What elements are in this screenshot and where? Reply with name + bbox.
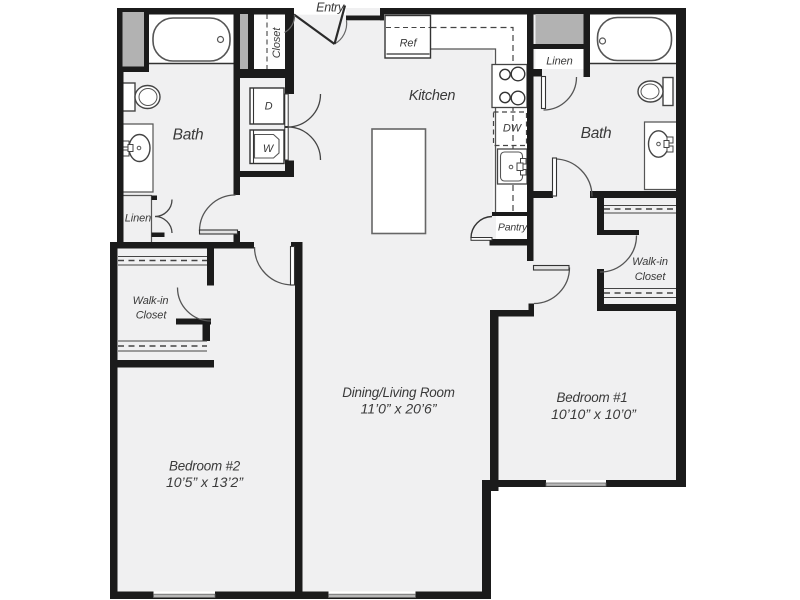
svg-text:Closet: Closet (635, 271, 667, 283)
svg-text:D: D (265, 101, 273, 113)
svg-text:Bath: Bath (173, 127, 204, 144)
svg-text:Ref: Ref (400, 38, 418, 50)
svg-text:Bedroom #1: Bedroom #1 (557, 390, 628, 405)
svg-text:10’10” x 10’0”: 10’10” x 10’0” (551, 406, 637, 422)
svg-text:Kitchen: Kitchen (409, 88, 455, 104)
svg-text:Bath: Bath (581, 125, 612, 142)
svg-text:Closet: Closet (271, 27, 283, 59)
svg-text:Closet: Closet (136, 310, 168, 322)
svg-text:Walk-in: Walk-in (133, 295, 169, 307)
svg-text:10’5” x 13’2”: 10’5” x 13’2” (166, 474, 244, 490)
svg-text:Bedroom #2: Bedroom #2 (169, 459, 241, 474)
svg-text:11’0” x 20’6”: 11’0” x 20’6” (360, 401, 437, 417)
svg-text:Linen: Linen (125, 213, 151, 225)
svg-text:Dining/Living Room: Dining/Living Room (342, 385, 455, 400)
svg-text:Linen: Linen (546, 56, 572, 68)
svg-text:W: W (263, 143, 275, 155)
svg-text:Entry: Entry (316, 1, 345, 15)
svg-text:Pantry: Pantry (498, 222, 528, 234)
svg-text:Walk-in: Walk-in (632, 256, 668, 268)
svg-text:DW: DW (503, 123, 523, 135)
